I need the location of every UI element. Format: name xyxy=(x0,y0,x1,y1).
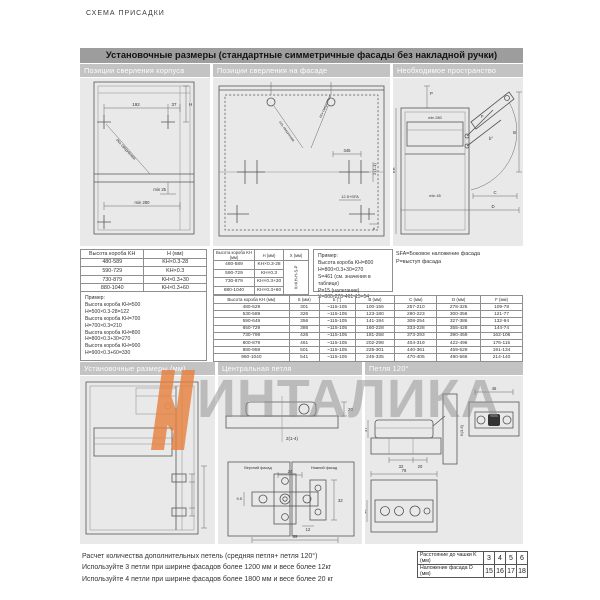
table-cell: 880-1040 xyxy=(214,286,255,295)
table-cell: ~115-105 xyxy=(319,354,355,361)
dim-label: 76 xyxy=(402,468,407,473)
table-cell: 18 xyxy=(517,565,528,578)
table-row: 650-729386~115-105160-228333-228355-4281… xyxy=(214,325,523,332)
col-facade-header: Позиции сверления на фасаде xyxy=(213,64,390,77)
table-cell: 590-729 xyxy=(81,267,144,276)
dim-label: 20 xyxy=(348,407,354,412)
col-corpus-header: Позиции сверления корпуса xyxy=(80,64,210,77)
table-cell: ~115-105 xyxy=(319,325,355,332)
text-line: SFA=Боковое наложение фасада xyxy=(396,251,523,259)
col-header: S (мм) xyxy=(289,296,319,304)
table-cell: KH×0.3-28 xyxy=(144,258,207,267)
table-row: 480-589KH×0.3-28 xyxy=(81,258,207,267)
col-header: Высота короба KH (мм) xyxy=(214,250,255,261)
text-line: S=461 (см. значения в таблице) xyxy=(318,274,388,288)
table-row: 590-729KH×0.3 xyxy=(81,267,207,276)
dim-label: 12 xyxy=(306,527,311,532)
table-cell: 440-361 xyxy=(395,347,437,354)
text-line: Высота короба KH=500 xyxy=(85,302,202,309)
text-line: Используйте 4 петли при ширине фасадов б… xyxy=(82,574,412,585)
table-cell: 404-319 xyxy=(395,339,437,346)
table-cell: 181-258 xyxy=(355,332,395,339)
text-line: H=800×0.3+30=270 xyxy=(318,267,388,274)
table-cell: 880-959 xyxy=(214,347,290,354)
dim-label: K(3-6) xyxy=(459,424,464,436)
text-line: Высота короба KH=800 xyxy=(85,330,202,337)
table-cell: 470-405 xyxy=(395,354,437,361)
table-cell: KH×0.3 xyxy=(254,269,283,278)
example-title: Пример: xyxy=(85,295,202,302)
central-hinge-panel: 20 2(1-4) Верхний фасад Нижний фасад 24 xyxy=(218,376,362,544)
table-cell: 16 xyxy=(495,565,506,578)
table-row: Наложение фасада D (мм) 15 16 17 18 xyxy=(418,565,528,578)
table-cell: 386 xyxy=(289,325,319,332)
table-cell: 480-589 xyxy=(214,261,255,270)
table-cell: 480-589 xyxy=(81,258,144,267)
install-panel xyxy=(80,376,215,544)
table-row: 730-799426~115-105181-258373-293390-4591… xyxy=(214,332,523,339)
col-header: F (мм) xyxy=(481,296,523,304)
hinge120-drawing: 37 32 20 K(3-6) 45 xyxy=(365,376,523,544)
table-cell: 109-78 xyxy=(481,304,523,311)
table-cell: 800-879 xyxy=(214,339,290,346)
table-dimensions: Высота короба KH (мм) S (мм) b (°) B (мм… xyxy=(213,295,523,362)
text-line: H=500×0.3-28=122 xyxy=(85,309,202,316)
facade-label: Верхний фасад xyxy=(244,466,272,470)
dim-label: 345 xyxy=(344,148,352,153)
table-cell: 390-459 xyxy=(437,332,481,339)
col-central-hinge-header: Центральная петля xyxy=(218,362,362,375)
col-header: B (мм) xyxy=(355,296,395,304)
table-row: Расстояние до чашки K (мм) 3 4 5 6 xyxy=(418,552,528,565)
table-cell: 245-335 xyxy=(355,354,395,361)
table-cell: 202-298 xyxy=(355,339,395,346)
table-cell: 327-386 xyxy=(437,318,481,325)
table-cell: 100-156 xyxy=(355,304,395,311)
table-row: 590-649356~115-105141-194308-254327-3861… xyxy=(214,318,523,325)
table-header-row: Высота короба KH (мм) H (мм) X (мм) xyxy=(214,250,309,261)
dim-label: 12.5+SFA xyxy=(341,194,359,199)
table-cell: KH×0.3-28 xyxy=(254,261,283,270)
x-formula-cell: X=KH-H-S-P xyxy=(284,261,309,295)
example-box-left: Пример: Высота короба KH=500H=500×0.3-28… xyxy=(80,291,207,361)
dim-label: KH xyxy=(393,167,396,173)
axis-label: ось сверления xyxy=(115,137,137,160)
sfa-notes: SFA=Боковое наложение фасадаP=выступ фас… xyxy=(396,251,523,266)
table-cell: 730-799 xyxy=(214,332,290,339)
hinge120-panel: 37 32 20 K(3-6) 45 xyxy=(365,376,523,544)
section-top: Установочные размеры (стандартные симмет… xyxy=(80,48,523,246)
dim-label: 20 xyxy=(418,464,423,469)
table-cell: 590-729 xyxy=(214,269,255,278)
corpus-drilling-drawing: 192 37 H ось сверления xyxy=(80,78,210,246)
table-cell: ~115-105 xyxy=(319,332,355,339)
section-bottom: Установочные размеры (мм) Центральная пе… xyxy=(80,362,523,544)
table-kh-h-x: Высота короба KH (мм) H (мм) X (мм) 480-… xyxy=(213,249,309,295)
table-cell: 5 xyxy=(506,552,517,565)
table-cell: Расстояние до чашки K (мм) xyxy=(418,552,484,565)
table-row: 480-589 KH×0.3-28 X=KH-H-S-P xyxy=(214,261,309,270)
table-cell: 333-228 xyxy=(395,325,437,332)
table-cell: 960-1040 xyxy=(214,354,290,361)
table-header-row: Высота короба KH (мм) S (мм) b (°) B (мм… xyxy=(214,296,523,304)
facade-label: Нижний фасад xyxy=(311,466,338,470)
col-header: D (мм) xyxy=(437,296,481,304)
col-space: Необходимое пространство min 280 min 45 xyxy=(393,64,523,246)
table-cell: 541 xyxy=(289,354,319,361)
table-cell: 141-194 xyxy=(355,318,395,325)
col-space-header: Необходимое пространство xyxy=(393,64,523,77)
table-cell: ~115-105 xyxy=(319,347,355,354)
table-cell: KH×0.3 xyxy=(144,267,207,276)
table-cell: 426 xyxy=(289,332,319,339)
table-cell: 501 xyxy=(289,347,319,354)
table-cell: 730-879 xyxy=(214,278,255,287)
table-cell: KH×0.3+30 xyxy=(254,278,283,287)
table-cell: 480-529 xyxy=(214,304,290,311)
table-cell: KH×0.3+60 xyxy=(254,286,283,295)
col-header: X (мм) xyxy=(284,250,309,261)
text-line: Используйте 3 петли при ширине фасадов б… xyxy=(82,562,412,573)
text-line: H=900×0.3+60=330 xyxy=(85,350,202,357)
hinge-count-notes: Расчет количества дополнительных петель … xyxy=(82,551,412,585)
col-hinge120-header: Петля 120° xyxy=(365,362,523,375)
col-header: H (мм) xyxy=(144,250,207,259)
col-header: Высота короба KH xyxy=(81,250,144,259)
table-cell: 160-228 xyxy=(355,325,395,332)
table-row: 880-959501~115-105225-301440-361459-5291… xyxy=(214,347,523,354)
dim-label: 37 xyxy=(365,427,368,432)
table-cell: 123-180 xyxy=(355,311,395,318)
text-line: P=выступ фасада xyxy=(396,259,523,267)
dim-label: D xyxy=(491,204,494,209)
space-panel: min 280 min 45 b° F xyxy=(393,78,523,246)
axis-label: ось сверления xyxy=(318,95,332,119)
dim-label: 15 xyxy=(365,509,367,514)
table-cell: 144-74 xyxy=(481,325,523,332)
dim-label: 192 xyxy=(132,102,140,107)
dim-label: B xyxy=(513,130,516,135)
facade-panel: ось сверления ось сверления 345 2 (1-4) xyxy=(213,78,390,246)
central-hinge-drawing: 20 2(1-4) Верхний фасад Нижний фасад 24 xyxy=(218,376,362,544)
table-cell: ~115-105 xyxy=(319,339,355,346)
table-cell: 278-325 xyxy=(437,304,481,311)
table-row: 530-589326~115-105123-180290-223300-3561… xyxy=(214,311,523,318)
text-line: P=15 (налегание) xyxy=(318,288,388,295)
dim-label: 32 xyxy=(338,498,343,503)
col-facade: Позиции сверления на фасаде ось сверлени… xyxy=(213,64,390,246)
col-header: C (мм) xyxy=(395,296,437,304)
dim-label: min 25 xyxy=(153,187,166,192)
table-cell: 3 xyxy=(484,552,495,565)
table-cell: 590-649 xyxy=(214,318,290,325)
table-cell: 301 xyxy=(289,304,319,311)
table-cell: 6 xyxy=(517,552,528,565)
col-install-header: Установочные размеры (мм) xyxy=(80,362,215,375)
text-line: Высота короба KH=700 xyxy=(85,316,202,323)
table-cell: Наложение фасада D (мм) xyxy=(418,565,484,578)
text-line: Высота короба KH=900 xyxy=(85,343,202,350)
dim-label: 2 (1-4) xyxy=(372,163,377,175)
tables-zone: Высота короба KH H (мм) 480-589KH×0.3-28… xyxy=(80,249,523,361)
table-cell: 422-496 xyxy=(437,339,481,346)
table-row: 730-879KH×0.3+30 xyxy=(81,275,207,284)
table-cell: 15 xyxy=(484,565,495,578)
table-cell: 214-140 xyxy=(481,354,523,361)
dim-label: 2(1-4) xyxy=(286,436,299,441)
table-cell: 650-729 xyxy=(214,325,290,332)
table-row: 800-879461~115-105202-298404-319422-4961… xyxy=(214,339,523,346)
text-line: Расчет количества дополнительных петель … xyxy=(82,551,412,562)
dim-label: 45 xyxy=(492,386,497,391)
example-title: Пример: xyxy=(318,253,388,260)
table-cell: 162-106 xyxy=(481,332,523,339)
table-cell: 17 xyxy=(506,565,517,578)
table-cell: 225-301 xyxy=(355,347,395,354)
dim-label: min 280 xyxy=(135,200,151,205)
dim-label: P xyxy=(430,91,433,96)
dim-label: min 280 xyxy=(428,116,442,120)
dim-label: 37 xyxy=(171,102,177,107)
table-cell: 300-356 xyxy=(437,311,481,318)
table-cell: 530-589 xyxy=(214,311,290,318)
document-sheet: СХЕМА ПРИСАДКИ Установочные размеры (ста… xyxy=(0,0,600,600)
table-row: 480-529301~115-105100-156257-210278-3251… xyxy=(214,304,523,311)
facade-drilling-drawing: ось сверления ось сверления 345 2 (1-4) xyxy=(213,78,390,246)
dim-label: F xyxy=(481,114,484,119)
table-cell: 4 xyxy=(495,552,506,565)
section-title: Установочные размеры (стандартные симмет… xyxy=(80,48,523,63)
table-header-row: Высота короба KH H (мм) xyxy=(81,250,207,259)
table-cell: 176-115 xyxy=(481,339,523,346)
col-header: H (мм) xyxy=(254,250,283,261)
table-cell: KH×0.3+30 xyxy=(144,275,207,284)
cup-distance-table: Расстояние до чашки K (мм) 3 4 5 6 Налож… xyxy=(417,551,528,578)
page-kicker: СХЕМА ПРИСАДКИ xyxy=(86,10,165,17)
table-cell: 132-94 xyxy=(481,318,523,325)
cabinet-side-drawing xyxy=(80,376,215,544)
table-cell: 730-879 xyxy=(81,275,144,284)
table-cell: 290-223 xyxy=(395,311,437,318)
table-cell: 356 xyxy=(289,318,319,325)
table-cell: 121-77 xyxy=(481,311,523,318)
table-cell: ~115-105 xyxy=(319,318,355,325)
table-cell: 459-529 xyxy=(437,347,481,354)
text-line: Высота короба KH=800 xyxy=(318,260,388,267)
corpus-panel: 192 37 H ось сверления xyxy=(80,78,210,246)
dim-label: min 45 xyxy=(429,194,440,198)
axis-label: ось сверления xyxy=(278,120,295,142)
text-line: H=700×0.3=210 xyxy=(85,323,202,330)
table-cell: 308-254 xyxy=(395,318,437,325)
required-space-drawing: min 280 min 45 b° F xyxy=(393,78,523,246)
table-cell: 490-566 xyxy=(437,354,481,361)
table-cell: 355-428 xyxy=(437,325,481,332)
dim-label: 9.5 xyxy=(236,496,242,501)
dim-label: H xyxy=(189,102,192,107)
table-kh-h: Высота короба KH H (мм) 480-589KH×0.3-28… xyxy=(80,249,207,293)
table-cell: 191-134 xyxy=(481,347,523,354)
table-cell: 373-293 xyxy=(395,332,437,339)
example-box-middle: Пример: Высота короба KH=800H=800×0.3+30… xyxy=(313,249,393,292)
dim-label: 24 xyxy=(288,469,293,474)
dim-label: 89 xyxy=(293,534,298,539)
dim-label: 6 xyxy=(373,226,376,231)
dim-label: C xyxy=(493,190,496,195)
dim-label: b° xyxy=(489,136,493,141)
table-cell: 326 xyxy=(289,311,319,318)
col-corpus: Позиции сверления корпуса 192 37 xyxy=(80,64,210,246)
table-row: 960-1040541~115-105245-335470-405490-566… xyxy=(214,354,523,361)
table-cell: ~115-105 xyxy=(319,304,355,311)
text-line: H=800×0.3+30=270 xyxy=(85,336,202,343)
table-cell: 461 xyxy=(289,339,319,346)
table-cell: 257-210 xyxy=(395,304,437,311)
table-cell: ~115-105 xyxy=(319,311,355,318)
col-header: b (°) xyxy=(319,296,355,304)
col-header: Высота короба KH (мм) xyxy=(214,296,290,304)
